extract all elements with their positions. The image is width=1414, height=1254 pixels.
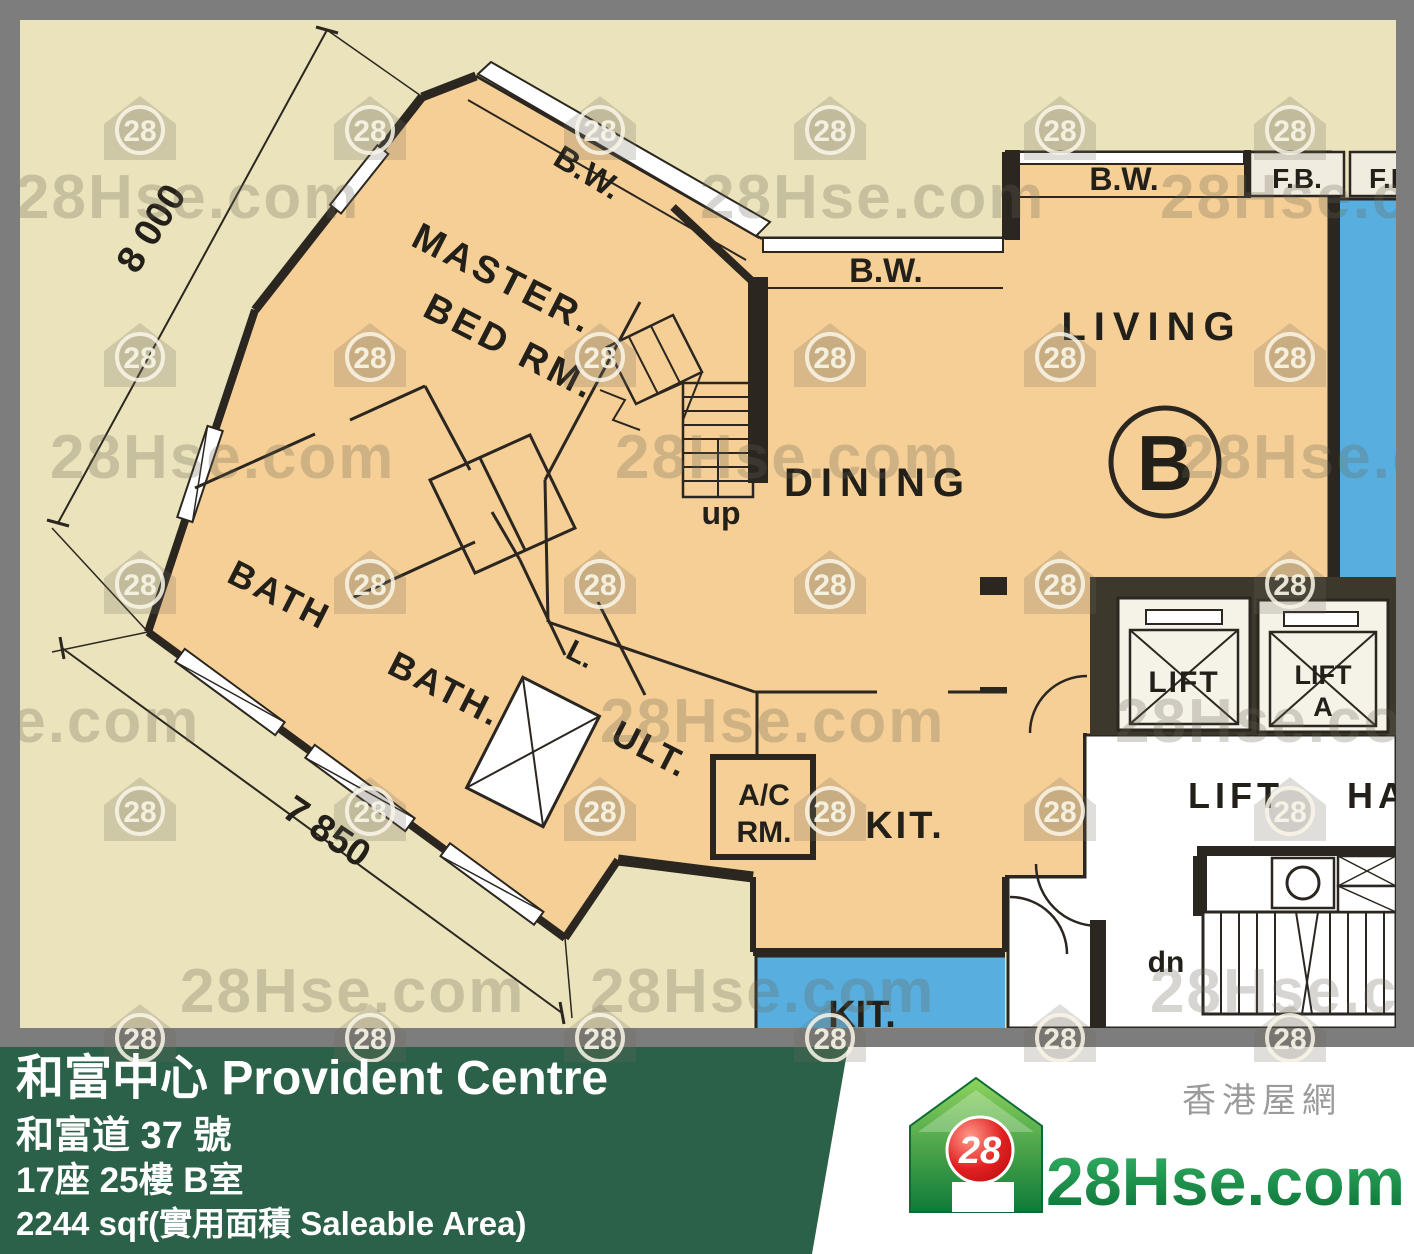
- stairs-up-label: up: [701, 495, 740, 531]
- watermark-text: 28Hse.com: [590, 957, 935, 1026]
- watermark-text: 28Hse.com: [600, 687, 945, 756]
- watermark-text: 28Hse.com: [50, 423, 395, 492]
- watermark-text: 28Hse.com: [0, 687, 200, 756]
- building-area: 2244 sqf(實用面積 Saleable Area): [16, 1205, 526, 1242]
- building-title: 和富中心 Provident Centre: [16, 1052, 608, 1105]
- watermark-text: 28Hse.com: [1160, 163, 1414, 232]
- bw-label-dining: B.W.: [849, 252, 923, 290]
- watermark-text: 28Hse.com: [700, 163, 1045, 232]
- lift2-label-line1: LIFT: [1295, 660, 1352, 690]
- ac-room-label-line2: RM.: [737, 816, 792, 849]
- watermark-text: 28Hse.com: [615, 423, 960, 492]
- floorplan-page: 28 8 000 7 850: [0, 0, 1414, 1254]
- living-label: LIVING: [1061, 305, 1242, 349]
- building-address: 和富道 37 號: [16, 1114, 231, 1157]
- watermark-text: 28Hse.com: [1180, 423, 1414, 492]
- brand-name: 28Hse.com: [1046, 1144, 1405, 1220]
- kitchen-label: KIT.: [865, 805, 945, 847]
- adjacent-unit-right: [1330, 197, 1396, 577]
- floorplan-svg: 28 8 000 7 850: [0, 0, 1414, 1254]
- watermark-text: 28Hse.com: [15, 163, 360, 232]
- watermark-text: 28Hse.com: [1115, 687, 1414, 756]
- bw-label-living: B.W.: [1089, 161, 1158, 197]
- brand-tagline: 香港屋網: [1182, 1082, 1342, 1120]
- building-unit: 17座 25樓 B室: [16, 1160, 244, 1200]
- brand-badge: 28: [958, 1130, 1002, 1172]
- watermark-text: 28Hse.com: [180, 957, 525, 1026]
- ac-room-label-line1: A/C: [738, 779, 790, 812]
